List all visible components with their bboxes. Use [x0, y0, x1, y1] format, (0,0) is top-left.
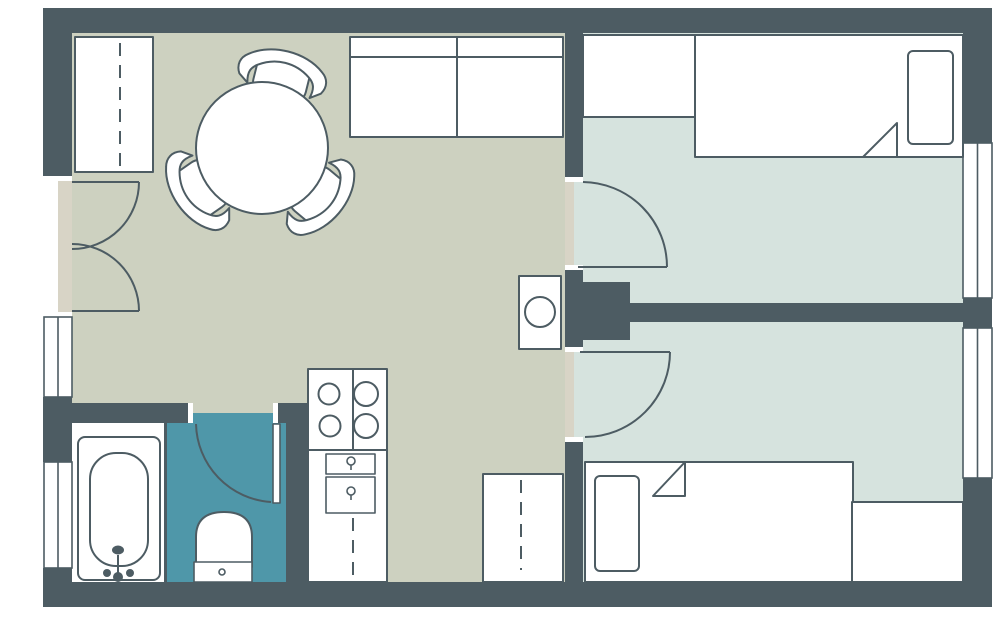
- wall-bathroom-top-right: [278, 403, 307, 423]
- window-icon: [44, 317, 72, 397]
- wall-right-lower: [963, 478, 992, 607]
- wall-top: [43, 8, 992, 33]
- bed-icon: [585, 462, 853, 582]
- dresser-icon: [852, 502, 963, 582]
- closet-icon: [583, 35, 695, 117]
- toilet-icon: [194, 512, 252, 582]
- wall-right-upper: [963, 8, 992, 143]
- wardrobe-icon: [75, 37, 153, 172]
- drain-icon: [112, 546, 124, 555]
- kitchen-unit: [308, 369, 387, 582]
- wall-between-bedrooms: [630, 303, 963, 322]
- floor-plan-drawing: [0, 0, 1000, 620]
- wall-wc-right: [286, 423, 307, 582]
- wall-left-lower: [43, 568, 72, 607]
- jamb: [44, 176, 72, 181]
- jamb: [273, 403, 278, 423]
- dining-table-icon: [196, 82, 328, 214]
- jamb: [188, 403, 193, 423]
- bathtub-icon: [78, 437, 160, 582]
- wall-right-middle: [963, 298, 992, 328]
- jamb: [565, 177, 583, 182]
- wall-spine-lower: [565, 442, 583, 582]
- sofa-icon: [350, 37, 563, 137]
- wall-chase-block: [583, 282, 630, 340]
- wall-left-upper: [43, 8, 72, 176]
- bedroom-bottom-threshold: [565, 352, 574, 437]
- wall-bottom: [43, 582, 992, 607]
- bedroom-top-threshold-inner: [574, 182, 583, 267]
- wall-bath-wc-partition: [164, 423, 167, 582]
- bedroom-top-threshold: [565, 182, 574, 267]
- bed-icon: [695, 35, 963, 157]
- wall-bathroom-top-left: [43, 403, 188, 423]
- jamb: [565, 437, 583, 442]
- bedroom-bottom-threshold-inner: [574, 352, 583, 437]
- entry-threshold: [58, 181, 72, 312]
- wall-spine-middle: [565, 270, 583, 347]
- window-icon: [44, 462, 72, 568]
- window-icon: [963, 328, 992, 478]
- wall-spine-upper: [565, 33, 583, 177]
- washing-machine-icon: [519, 276, 561, 349]
- window-icon: [963, 143, 992, 298]
- kitchen-cabinet-icon: [326, 454, 375, 513]
- pillow-icon: [908, 51, 953, 144]
- floor-plan-page: [0, 0, 1000, 620]
- pillow-icon: [595, 476, 639, 571]
- wardrobe-icon: [483, 474, 563, 582]
